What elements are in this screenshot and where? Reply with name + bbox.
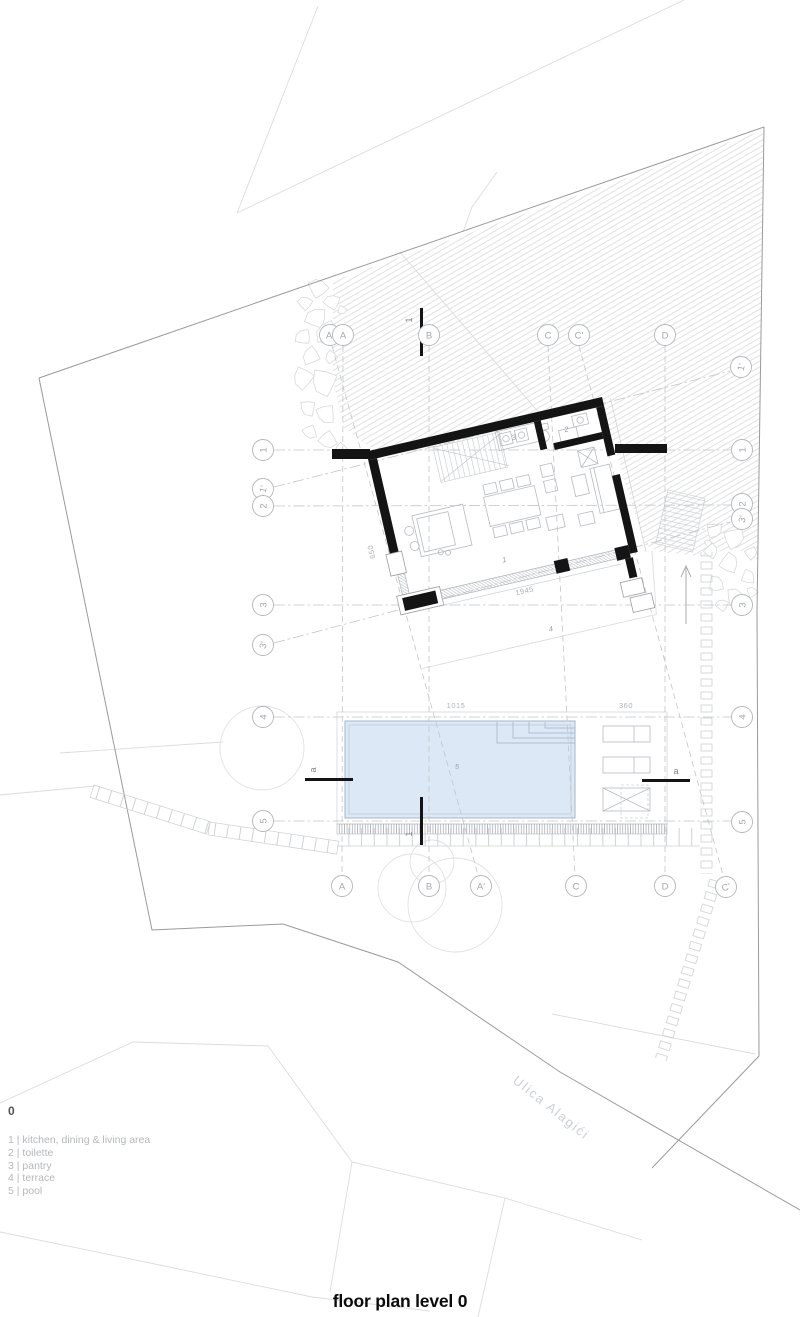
grid-bubble: 3 [732,595,753,616]
page-title: floor plan level 0 [0,1291,800,1312]
svg-text:C': C' [575,330,584,341]
svg-text:C: C [573,881,580,892]
section-1-bottom-label: 1 [404,831,414,836]
grid-bubble: 3 [253,595,274,616]
grid-bubble: A [333,325,354,346]
grid-bubble: D [655,876,676,897]
grid-bubble: 3' [732,509,753,530]
svg-text:1: 1 [737,447,748,452]
grid-bubble: 5 [732,812,753,833]
south-glazing-dim: 1945 [515,584,535,597]
rock [295,330,309,344]
grid-bubble: 4 [253,707,274,728]
rock [747,587,758,597]
grid-bubble: 4 [732,707,753,728]
legend-item: 2 | toilette [8,1147,150,1160]
rock [297,297,313,310]
svg-text:B: B [426,330,432,341]
svg-text:2: 2 [258,503,269,508]
hill-stair-lower [654,876,723,1062]
grid-bubble: C' [569,325,590,346]
grid-bubble: C [538,325,559,346]
grid-bubble: 3' [253,635,274,656]
sun-loungers [603,726,650,818]
grid-bubble: B [419,325,440,346]
legend-item: 5 | pool [8,1185,150,1198]
svg-text:4: 4 [737,714,748,719]
rock [316,406,333,423]
grid-bubble: 2 [253,496,274,517]
floor-plan-page: 1015 360 5 [0,0,800,1317]
direction-arrow [681,566,691,624]
legend: 0 1 | kitchen, dining & living area 2 | … [8,1104,150,1198]
legend-level: 0 [8,1104,150,1118]
rock [295,367,315,390]
pool-length-dim: 1015 [447,701,466,710]
grid-bubble: 1' [731,357,752,378]
svg-text:4: 4 [258,714,269,719]
west-wall-dim: 650 [365,544,377,560]
grid-bubble: 5 [253,811,274,832]
grid-bubble: B [419,876,440,897]
svg-text:3: 3 [258,602,269,607]
svg-text:5: 5 [258,818,269,823]
svg-text:A': A' [477,881,485,892]
room-label-terrace: 4 [548,624,554,634]
svg-text:2: 2 [737,501,748,506]
svg-text:A: A [339,881,346,892]
grid-bubble: D [655,325,676,346]
deck-tick-path [340,828,698,846]
section-1-top-label: 1 [404,317,414,322]
section-a-right-mark [642,779,690,782]
section-1-bottom-mark [420,797,423,845]
svg-text:A: A [340,330,347,341]
svg-text:D: D [662,330,669,341]
rock [741,569,753,583]
svg-text:D: D [662,881,669,892]
grid-bubble: A' [471,876,492,897]
grid-bubble: A [332,876,353,897]
legend-item: 3 | pantry [8,1160,150,1173]
grid-bubble: C [566,876,587,897]
svg-text:5: 5 [737,819,748,824]
legend-item: 1 | kitchen, dining & living area [8,1134,150,1147]
svg-text:1: 1 [258,447,269,452]
rock [308,279,329,298]
section-a-left-mark [305,778,353,781]
grid-bubble: 1 [732,440,753,461]
rock [302,425,316,438]
rock [301,402,315,416]
rock [715,600,728,611]
deck-width-dim: 360 [619,701,633,710]
rock [719,552,737,573]
grid-bubble: C' [716,877,737,898]
legend-item: 4 | terrace [8,1172,150,1185]
pool [345,721,575,818]
svg-text:3: 3 [737,602,748,607]
svg-text:C: C [545,330,552,341]
section-a-left-label: a [308,767,318,772]
section-a-right-label: a [673,766,678,776]
pool-area: 1015 360 5 [337,701,700,846]
rock [303,346,320,365]
hill-stair-path [700,552,713,874]
rock [318,431,337,448]
grid-bubble: 1 [253,440,274,461]
svg-text:B: B [426,881,432,892]
